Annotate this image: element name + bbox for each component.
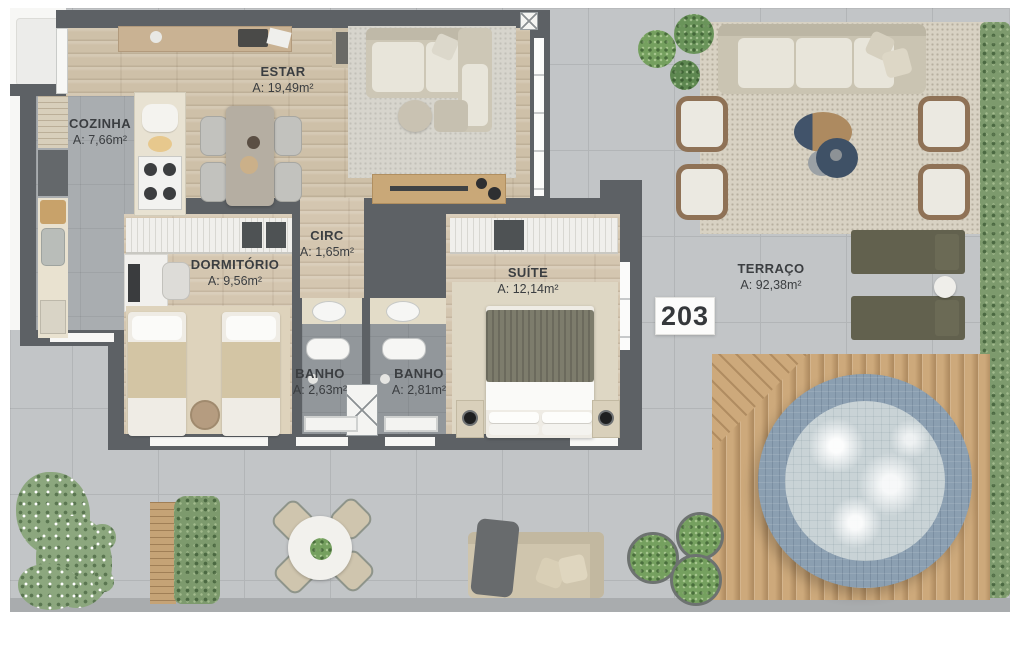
room-name: ESTAR	[252, 65, 313, 78]
room-area: A: 19,49m²	[252, 82, 313, 95]
kitchen-sink	[41, 228, 65, 266]
suite-terrace-door	[620, 262, 630, 350]
room-name: SUÍTE	[497, 266, 558, 279]
burner	[144, 163, 157, 176]
floor-plan-render: ESTAR A: 19,49m² COZINHA A: 7,66m² DORMI…	[10, 8, 1010, 612]
decor-vase	[476, 178, 487, 189]
flowering-sprig	[90, 524, 116, 550]
ottoman	[434, 100, 468, 132]
room-area: A: 2,63m²	[293, 384, 347, 397]
dining-chair	[200, 116, 228, 156]
room-name: COZINHA	[69, 117, 131, 130]
shaft-x-icon	[520, 12, 538, 30]
room-label-suite: SUÍTE A: 12,14m²	[497, 266, 558, 296]
room-area: A: 7,66m²	[69, 134, 131, 147]
table-plant	[310, 538, 332, 560]
banho1-sink	[312, 301, 346, 322]
room-name: CIRC	[300, 229, 354, 242]
banho2-towel-hook	[380, 374, 390, 384]
room-name: TERRAÇO	[737, 262, 804, 275]
sun-lounger	[851, 230, 965, 274]
bed-blanket	[486, 310, 594, 382]
pool-water	[785, 401, 945, 561]
round-rug	[190, 400, 220, 430]
dining-decor-plate	[240, 156, 258, 174]
lounger-headrest	[935, 234, 959, 270]
sun-lounger	[851, 296, 965, 340]
sofa-cushion	[738, 38, 794, 88]
bed-pillow	[489, 424, 539, 435]
kitchen-appliance	[40, 300, 66, 334]
sofa-pillow	[558, 554, 589, 585]
sofa-cushion	[372, 42, 424, 92]
lounger-headrest	[935, 300, 959, 336]
burner	[144, 187, 157, 200]
room-name: BANHO	[293, 367, 347, 380]
burner	[163, 187, 176, 200]
suite-wardrobe	[450, 218, 618, 254]
bed-pillow	[489, 412, 539, 423]
pool	[758, 374, 972, 588]
stove	[138, 156, 182, 210]
dining-chair	[274, 162, 302, 202]
wardrobe-dark-unit	[266, 222, 286, 248]
terrace-bush	[638, 30, 676, 68]
terrace-bush	[674, 14, 714, 54]
island-bowl	[148, 136, 172, 152]
island-dishware	[142, 104, 178, 132]
banho2-sink	[386, 301, 420, 322]
banho1-window	[296, 437, 348, 446]
banho1-shower	[304, 416, 358, 432]
planter-bush	[676, 512, 724, 560]
room-label-banho2: BANHO A: 2,81m²	[392, 367, 446, 397]
room-label-circ: CIRC A: 1,65m²	[300, 229, 354, 259]
sofa-pillow	[881, 47, 913, 79]
twin-bed	[128, 312, 186, 436]
dining-chair	[200, 162, 228, 202]
room-area: A: 2,81m²	[392, 384, 446, 397]
flowering-bush	[18, 564, 80, 610]
decor-vase	[488, 187, 501, 200]
bed-blanket	[128, 342, 186, 398]
soundbar	[390, 186, 468, 191]
nightstand-lamp	[462, 410, 478, 426]
wardrobe-dark-unit	[494, 220, 524, 250]
desk-monitor	[128, 264, 140, 302]
room-label-cozinha: COZINHA A: 7,66m²	[69, 117, 131, 147]
wall-ne-corner	[600, 180, 642, 200]
flowering-sprig	[92, 570, 114, 592]
sideboard-books	[238, 29, 268, 47]
room-area: A: 92,38m²	[737, 279, 804, 292]
outdoor-sofa-back	[718, 24, 926, 36]
outdoor-armchair	[676, 96, 728, 152]
sofa-throw-blanket	[470, 518, 520, 598]
room-name: DORMITÓRIO	[191, 258, 280, 271]
room-area: A: 9,56m²	[191, 275, 280, 288]
bed-sheet	[486, 382, 594, 410]
room-label-terraco: TERRAÇO A: 92,38m²	[737, 262, 804, 292]
room-name: BANHO	[392, 367, 446, 380]
entry-fixture	[16, 18, 60, 86]
estar-glass-door	[534, 38, 544, 196]
desk-chair	[162, 262, 190, 300]
room-label-estar: ESTAR A: 19,49m²	[252, 65, 313, 95]
bed-pillow	[132, 316, 182, 340]
twin-bed	[222, 312, 280, 436]
outdoor-armchair	[918, 164, 970, 220]
suite-bed	[486, 306, 594, 438]
round-coffee-table	[398, 100, 432, 132]
banho2-toilet	[382, 338, 426, 360]
nightstand-lamp	[598, 410, 614, 426]
dormitorio-window	[150, 437, 268, 446]
wardrobe-dark-unit	[242, 222, 262, 248]
kitchen-tall-cabinet	[38, 150, 68, 196]
lounger-side-table	[934, 276, 956, 298]
dining-chair	[274, 116, 302, 156]
bed-pillow	[542, 424, 592, 435]
outdoor-armchair	[676, 164, 728, 220]
bed-pillow	[226, 316, 276, 340]
banho1-toilet	[306, 338, 350, 360]
pantry-shelf	[38, 96, 68, 148]
bed-blanket	[222, 342, 280, 398]
banho2-shower	[384, 416, 438, 432]
dining-decor-dark	[247, 136, 260, 149]
building-exterior	[10, 96, 20, 330]
floor-plan-page: ESTAR A: 19,49m² COZINHA A: 7,66m² DORMI…	[0, 0, 1024, 646]
entry-door	[56, 28, 68, 94]
cutting-board	[40, 200, 66, 224]
room-area: A: 12,14m²	[497, 283, 558, 296]
table-decor	[830, 149, 842, 161]
garden-hedge	[174, 496, 220, 604]
outdoor-sofa	[718, 24, 926, 94]
sideboard-vase	[150, 31, 162, 43]
terrace-bush	[670, 60, 700, 90]
bed-pillow	[542, 412, 592, 423]
unit-number-badge: 203	[655, 297, 715, 335]
wall-kitchen-west	[20, 84, 36, 346]
banho2-window	[385, 437, 435, 446]
outdoor-armchair	[918, 96, 970, 152]
room-label-dormitorio: DORMITÓRIO A: 9,56m²	[191, 258, 280, 288]
burner	[163, 163, 176, 176]
room-label-banho1: BANHO A: 2,63m²	[293, 367, 347, 397]
wood-slat-bench	[150, 502, 176, 604]
sofa-cushion	[796, 38, 852, 88]
suite-window	[570, 437, 618, 446]
room-area: A: 1,65m²	[300, 246, 354, 259]
garden-sofa-arm	[590, 532, 604, 598]
planter-bush	[670, 554, 722, 606]
unit-number: 203	[661, 301, 709, 332]
